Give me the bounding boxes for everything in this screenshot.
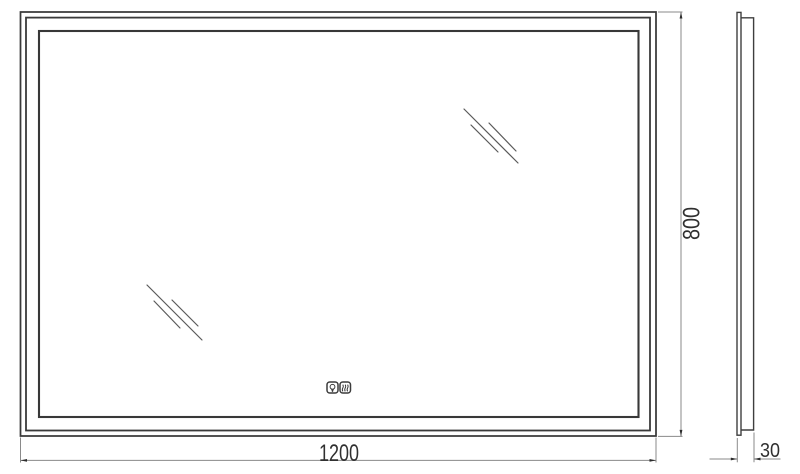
svg-text:30: 30 (760, 440, 780, 462)
svg-text:800: 800 (679, 207, 706, 240)
svg-text:1200: 1200 (319, 440, 359, 467)
